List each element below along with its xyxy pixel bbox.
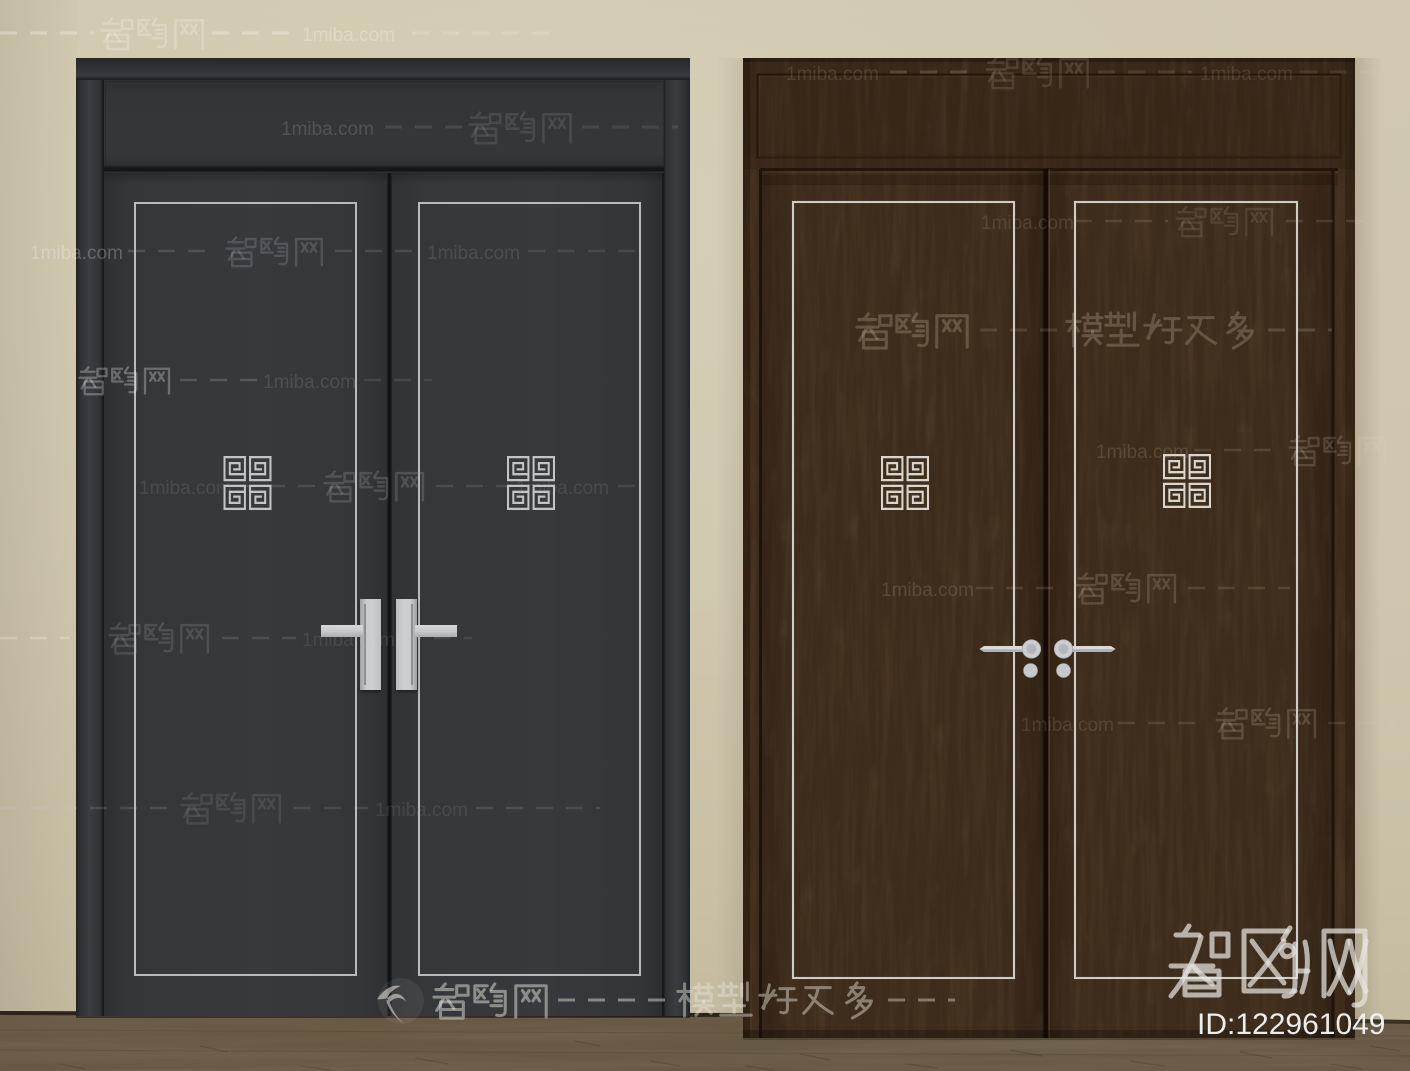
svg-text:1miba.com: 1miba.com (302, 630, 395, 651)
svg-text:1miba.com: 1miba.com (881, 580, 974, 601)
svg-text:1miba.com: 1miba.com (427, 243, 520, 264)
svg-text:1miba.com: 1miba.com (375, 800, 468, 821)
svg-text:1miba.com: 1miba.com (516, 478, 609, 499)
svg-text:1miba.com: 1miba.com (30, 243, 123, 264)
svg-text:1miba.com: 1miba.com (139, 478, 232, 499)
svg-text:1miba.com: 1miba.com (281, 119, 374, 140)
svg-text:1miba.com: 1miba.com (1021, 715, 1114, 736)
svg-text:1miba.com: 1miba.com (263, 372, 356, 393)
svg-text:1miba.com: 1miba.com (981, 213, 1074, 234)
svg-text:1miba.com: 1miba.com (1200, 64, 1293, 85)
svg-text:1miba.com: 1miba.com (786, 64, 879, 85)
svg-text:ID:122961049: ID:122961049 (1197, 1008, 1386, 1041)
svg-text:1miba.com: 1miba.com (302, 25, 395, 46)
svg-text:1miba.com: 1miba.com (1096, 442, 1189, 463)
